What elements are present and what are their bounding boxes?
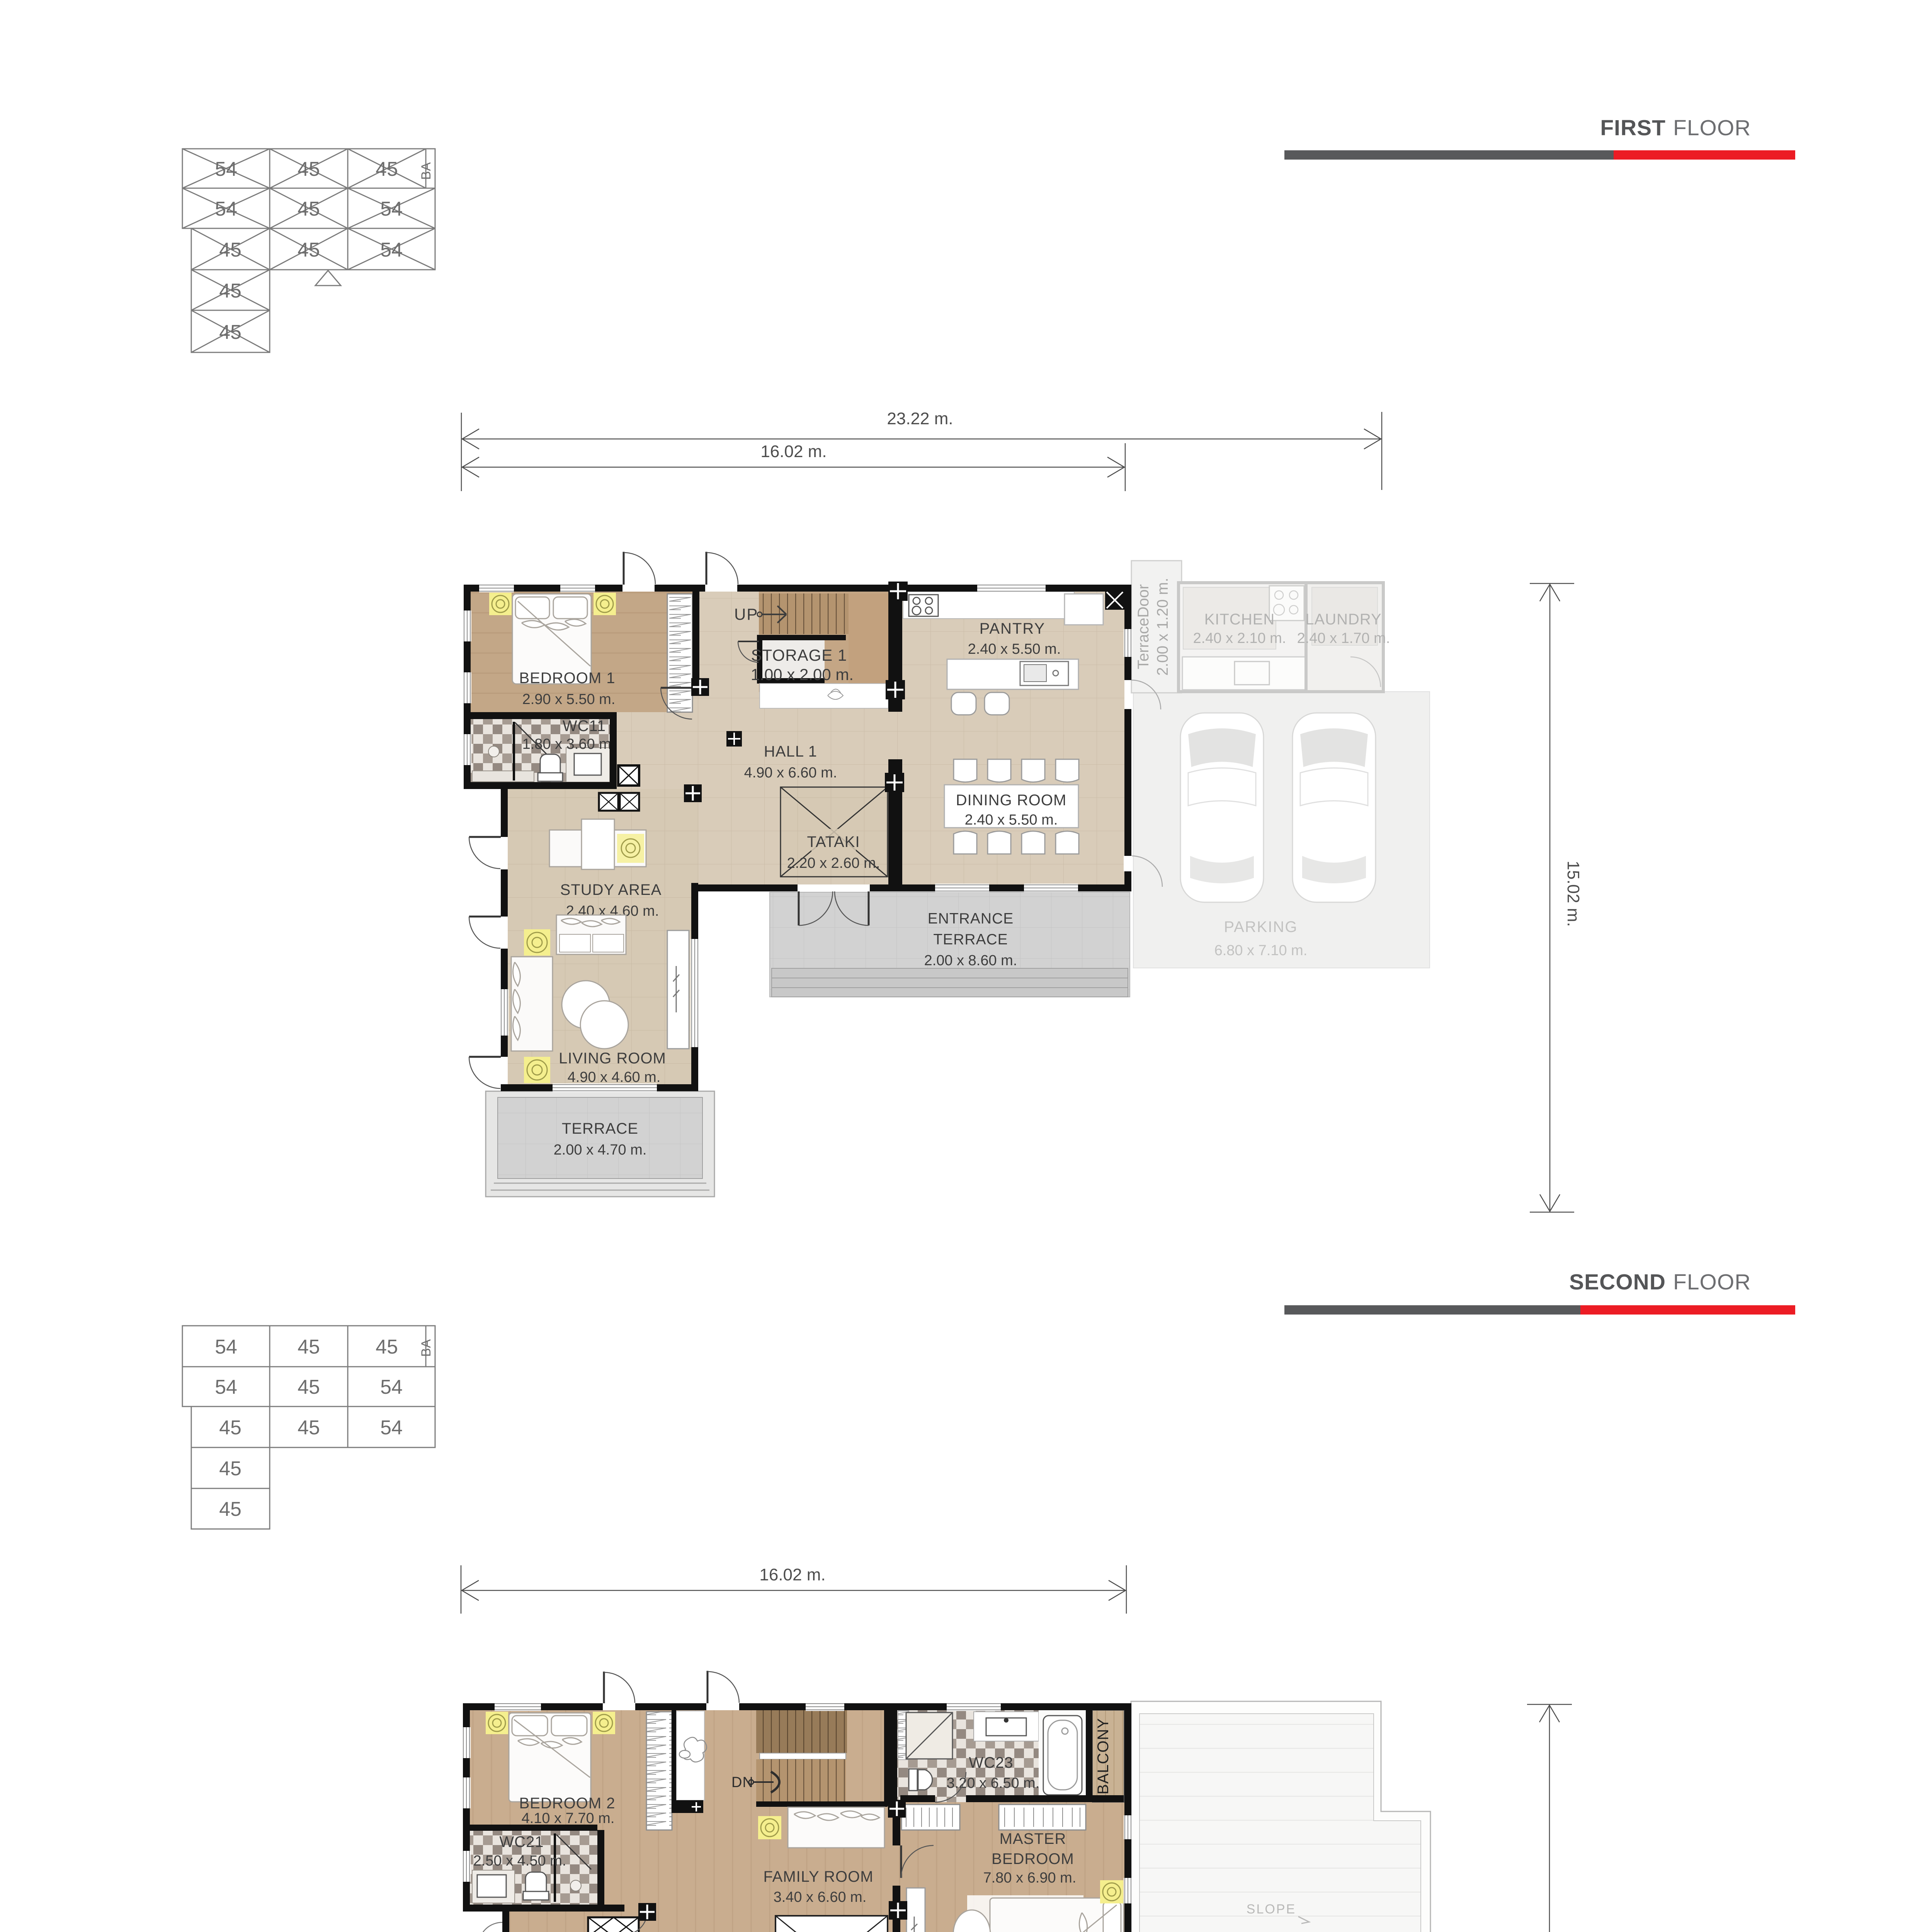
svg-text:16.02 m.: 16.02 m. [760,442,827,461]
svg-text:FIRST: FIRST [1600,116,1666,140]
svg-text:45: 45 [219,321,241,344]
svg-text:45: 45 [219,280,241,302]
svg-text:WC21: WC21 [499,1833,544,1850]
svg-text:WC23: WC23 [969,1754,1013,1771]
svg-text:FLOOR: FLOOR [1673,116,1751,140]
svg-text:16.02 m.: 16.02 m. [759,1565,825,1584]
svg-text:45: 45 [298,1376,320,1398]
svg-text:45: 45 [219,1417,241,1439]
svg-text:TERRACE: TERRACE [933,931,1008,948]
svg-text:2.00 x 8.60 m.: 2.00 x 8.60 m. [924,952,1017,969]
svg-text:SLOPE: SLOPE [1247,1902,1296,1917]
svg-text:3.40 x 6.60 m.: 3.40 x 6.60 m. [774,1889,867,1905]
svg-text:2.40 x 5.50 m.: 2.40 x 5.50 m. [968,641,1061,657]
svg-text:45: 45 [219,1458,241,1480]
svg-text:45: 45 [376,158,398,180]
svg-text:2.00 x 1.20 m.: 2.00 x 1.20 m. [1154,578,1171,675]
svg-text:BALCONY: BALCONY [1095,1718,1112,1794]
svg-text:UP: UP [734,605,758,623]
svg-text:FLOOR: FLOOR [1673,1270,1751,1294]
svg-text:FAMILY ROOM: FAMILY ROOM [763,1868,873,1885]
svg-text:2.20 x 2.60 m.: 2.20 x 2.60 m. [787,855,880,871]
svg-text:2.50 x 4.50 m.: 2.50 x 4.50 m. [473,1853,566,1869]
svg-text:BEDROOM: BEDROOM [992,1850,1074,1867]
svg-text:BEDROOM 1: BEDROOM 1 [519,670,615,687]
svg-text:54: 54 [380,239,403,261]
svg-text:TERRACE: TERRACE [562,1120,638,1137]
svg-text:54: 54 [215,158,237,180]
svg-text:6.80 x 7.10 m.: 6.80 x 7.10 m. [1214,942,1308,959]
svg-text:45: 45 [219,1498,241,1520]
svg-text:4.90 x 6.60 m.: 4.90 x 6.60 m. [744,765,837,781]
svg-text:PANTRY: PANTRY [980,620,1046,637]
svg-text:7.80 x 6.90 m.: 7.80 x 6.90 m. [983,1870,1077,1886]
svg-text:HALL 1: HALL 1 [764,743,817,760]
svg-text:WC11: WC11 [563,718,606,735]
svg-text:45: 45 [298,1417,320,1439]
svg-text:1.80 x 3.60 m.: 1.80 x 3.60 m. [522,736,616,752]
svg-text:ENTRANCE: ENTRANCE [928,910,1014,927]
svg-text:15.02 m.: 15.02 m. [1564,861,1583,927]
svg-text:LIVING ROOM: LIVING ROOM [559,1050,666,1067]
svg-text:45: 45 [298,158,320,180]
svg-text:45: 45 [219,239,241,261]
svg-text:TerraceDoor: TerraceDoor [1135,584,1152,669]
svg-text:BEDROOM 2: BEDROOM 2 [519,1795,615,1812]
svg-text:45: 45 [298,1336,320,1358]
svg-text:2.40 x 5.50 m.: 2.40 x 5.50 m. [965,812,1058,828]
svg-text:45: 45 [298,239,320,261]
svg-text:54: 54 [380,1376,403,1398]
svg-text:STORAGE 1: STORAGE 1 [751,646,847,664]
svg-text:2.40 x 1.70 m.: 2.40 x 1.70 m. [1297,630,1390,646]
svg-text:45: 45 [298,198,320,220]
svg-text:54: 54 [215,198,237,220]
svg-text:1.00 x 2.00 m.: 1.00 x 2.00 m. [751,665,854,684]
svg-text:23.22 m.: 23.22 m. [887,409,953,428]
svg-text:54: 54 [380,198,403,220]
svg-text:4.10 x 7.70 m.: 4.10 x 7.70 m. [522,1810,615,1827]
svg-text:DINING ROOM: DINING ROOM [956,792,1067,809]
svg-text:KITCHEN: KITCHEN [1204,611,1275,628]
svg-text:BA: BA [419,1339,434,1357]
svg-text:DN: DN [731,1774,753,1791]
svg-text:BA: BA [419,162,434,180]
svg-text:2.00 x 4.70 m.: 2.00 x 4.70 m. [554,1142,647,1158]
svg-text:54: 54 [215,1376,237,1398]
svg-text:54: 54 [215,1336,237,1358]
svg-text:45: 45 [376,1336,398,1358]
svg-text:TATAKI: TATAKI [807,833,860,850]
svg-text:4.90 x 4.60 m.: 4.90 x 4.60 m. [568,1069,661,1085]
svg-text:MASTER: MASTER [1000,1830,1066,1847]
svg-text:2.90 x 5.50 m.: 2.90 x 5.50 m. [522,691,616,707]
svg-text:54: 54 [380,1417,403,1439]
svg-text:PARKING: PARKING [1224,918,1298,935]
svg-text:SECOND: SECOND [1569,1270,1666,1294]
svg-text:STUDY AREA: STUDY AREA [560,881,662,898]
svg-text:LAUNDRY: LAUNDRY [1305,611,1381,628]
svg-text:2.40 x 2.10 m.: 2.40 x 2.10 m. [1193,630,1286,646]
